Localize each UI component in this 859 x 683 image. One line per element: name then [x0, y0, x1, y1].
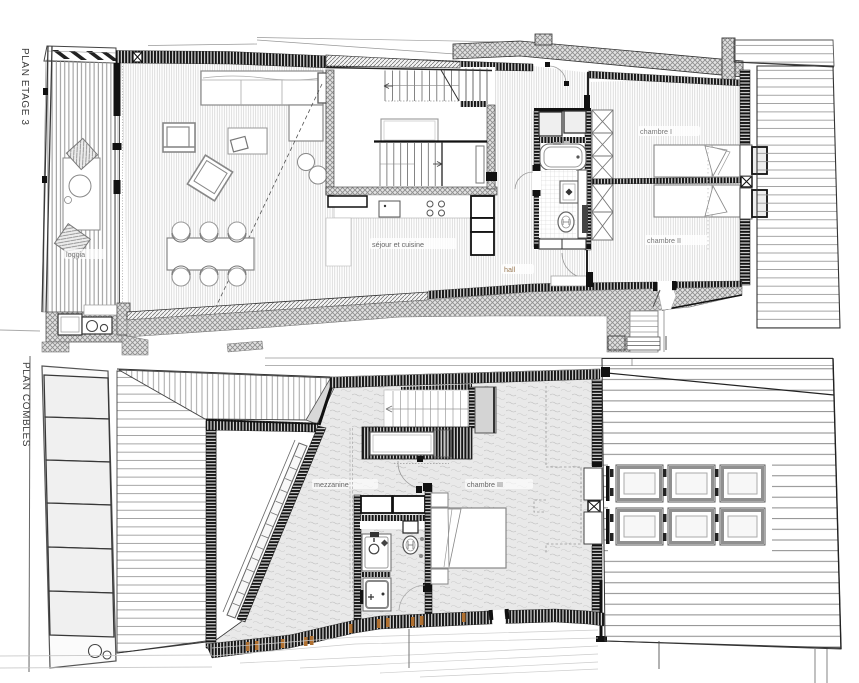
svg-text:PLAN ETAGE 3: PLAN ETAGE 3 — [19, 48, 30, 126]
svg-text:loggia: loggia — [66, 250, 85, 259]
svg-text:mezzanine: mezzanine — [314, 480, 349, 489]
svg-text:chambre III: chambre III — [467, 480, 503, 489]
svg-text:chambre II: chambre II — [647, 236, 681, 245]
svg-text:séjour et cuisine: séjour et cuisine — [372, 240, 424, 249]
svg-text:chambre I: chambre I — [640, 127, 672, 136]
svg-text:hall: hall — [504, 265, 516, 274]
